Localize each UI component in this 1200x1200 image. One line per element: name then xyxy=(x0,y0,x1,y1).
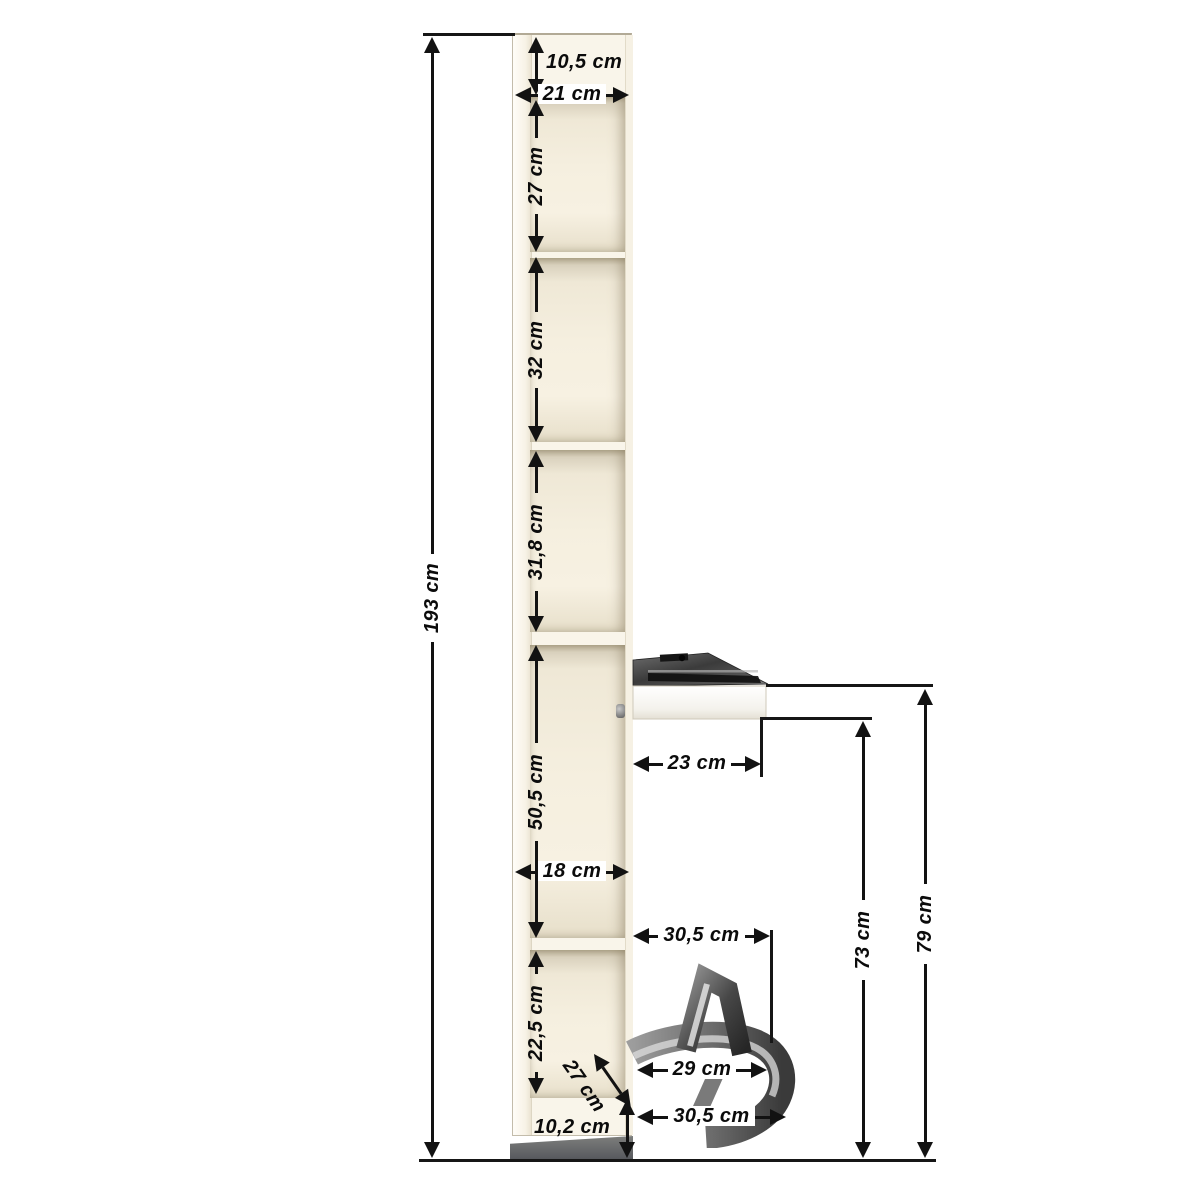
pullout-shelf-illustration xyxy=(630,648,775,723)
arrow-left-icon xyxy=(633,756,649,772)
dim-shelf-top-height: 79 cm xyxy=(916,689,934,1158)
dim-line xyxy=(535,116,538,138)
dim-label-shelf-underside-height: 73 cm xyxy=(853,910,873,969)
ref-line-shelf-bottom xyxy=(761,717,872,720)
arrow-up-icon xyxy=(855,721,871,737)
dim-shelf-depth: 23 cm xyxy=(633,755,761,773)
arrow-up-icon xyxy=(917,689,933,705)
arrow-up-icon xyxy=(528,257,544,273)
ref-line-holder-edge xyxy=(770,930,773,1043)
dim-label-plinth-height: 10,2 cm xyxy=(534,1117,610,1137)
shelf-front-slab xyxy=(633,686,766,719)
dim-line xyxy=(535,273,538,312)
dim-compartment1-height: 27 cm xyxy=(527,100,545,252)
dimension-diagram: 193 cm 10,5 cm 27 cm 32 cm 31,8 cm xyxy=(0,0,1200,1200)
dim-holder-upper-depth: 30,5 cm xyxy=(633,927,770,945)
dim-line xyxy=(535,841,538,923)
ref-line-top xyxy=(423,33,515,36)
arrow-up-icon xyxy=(424,37,440,53)
dim-label-compartment5-height: 22,5 cm xyxy=(526,984,546,1060)
shelf-highlight xyxy=(648,670,758,673)
dim-line xyxy=(649,763,663,766)
dim-line xyxy=(862,737,865,900)
dim-iron-rest-outer-depth: 30,5 cm xyxy=(637,1108,786,1126)
arrow-left-icon xyxy=(515,87,531,103)
arrow-down-icon xyxy=(528,616,544,632)
dim-line xyxy=(745,935,754,938)
dim-line xyxy=(649,935,658,938)
dim-line xyxy=(431,642,434,1143)
dim-label-shelf-top-height: 79 cm xyxy=(915,894,935,953)
dim-line xyxy=(606,871,613,874)
arrow-up-icon xyxy=(528,951,544,967)
dim-line xyxy=(862,980,865,1143)
arrow-down-icon xyxy=(619,1142,635,1158)
dim-line xyxy=(535,388,538,427)
dim-label-top-depth: 21 cm xyxy=(538,84,607,104)
dim-line xyxy=(606,94,613,97)
dim-line xyxy=(731,763,745,766)
dim-middle-depth: 18 cm xyxy=(515,863,629,881)
arrow-up-icon xyxy=(528,451,544,467)
arrow-left-icon xyxy=(637,1109,653,1125)
dim-line xyxy=(626,1115,629,1142)
dim-label-compartment2-height: 32 cm xyxy=(526,320,546,379)
arrow-left-icon xyxy=(633,928,649,944)
dim-compartment5-height: 22,5 cm xyxy=(527,951,545,1094)
dim-compartment4-height: 50,5 cm xyxy=(527,645,545,938)
dim-label-compartment3-height: 31,8 cm xyxy=(526,503,546,579)
arrow-right-icon xyxy=(770,1109,786,1125)
dim-label-top-panel-height: 10,5 cm xyxy=(546,52,622,72)
dim-total-height: 193 cm xyxy=(423,37,441,1158)
dim-line xyxy=(531,94,538,97)
arrow-right-icon xyxy=(745,756,761,772)
arrow-right-icon xyxy=(751,1062,767,1078)
arrow-up-icon xyxy=(528,645,544,661)
dim-label-iron-rest-width: 29 cm xyxy=(668,1059,737,1079)
arrow-down-icon xyxy=(528,922,544,938)
dim-line xyxy=(531,871,538,874)
dim-label-total-height: 193 cm xyxy=(422,562,442,632)
dim-label-holder-upper-depth: 30,5 cm xyxy=(658,925,744,945)
arrow-right-icon xyxy=(613,87,629,103)
dim-line xyxy=(535,661,538,743)
dim-line xyxy=(653,1069,668,1072)
ref-line-shelf-top xyxy=(766,684,933,687)
dim-label-middle-depth: 18 cm xyxy=(538,861,607,881)
dim-label-compartment4-height: 50,5 cm xyxy=(526,753,546,829)
arrow-down-icon xyxy=(424,1142,440,1158)
dim-line xyxy=(736,1069,751,1072)
arrow-right-icon xyxy=(754,928,770,944)
shelf-knob xyxy=(679,655,685,661)
dim-shelf-underside-height: 73 cm xyxy=(854,721,872,1158)
dim-line xyxy=(535,214,538,236)
ref-line-floor xyxy=(419,1159,936,1162)
dim-line xyxy=(924,964,927,1143)
dim-line xyxy=(431,53,434,554)
dim-line xyxy=(653,1116,668,1119)
dim-label-shelf-depth: 23 cm xyxy=(663,753,732,773)
arrow-down-icon xyxy=(917,1142,933,1158)
arrow-down-icon xyxy=(528,236,544,252)
dim-label-iron-rest-outer-depth: 30,5 cm xyxy=(668,1106,754,1126)
arrow-down-icon xyxy=(855,1142,871,1158)
dim-compartment3-height: 31,8 cm xyxy=(527,451,545,632)
dim-top-depth: 21 cm xyxy=(515,86,629,104)
dim-line xyxy=(755,1116,770,1119)
dim-iron-rest-width: 29 cm xyxy=(637,1061,767,1079)
dim-label-compartment1-height: 27 cm xyxy=(526,147,546,206)
dim-line xyxy=(535,53,538,79)
dim-line xyxy=(535,591,538,617)
arrow-down-icon xyxy=(528,1078,544,1094)
dim-line xyxy=(535,467,538,493)
arrow-right-icon xyxy=(613,864,629,880)
dim-compartment2-height: 32 cm xyxy=(527,257,545,442)
arrow-up-icon xyxy=(528,37,544,53)
arrow-down-icon xyxy=(528,426,544,442)
mounting-screw xyxy=(616,704,625,718)
arrow-left-icon xyxy=(515,864,531,880)
arrow-left-icon xyxy=(637,1062,653,1078)
dim-line xyxy=(924,705,927,884)
